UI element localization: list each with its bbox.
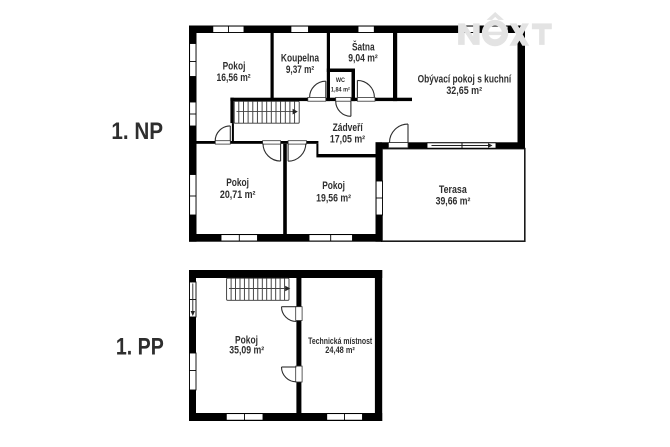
svg-text:Koupelna: Koupelna [281, 52, 319, 64]
svg-text:Pokoj: Pokoj [322, 180, 345, 192]
svg-text:Pokoj: Pokoj [223, 61, 246, 73]
svg-text:16,56 m²: 16,56 m² [217, 72, 251, 84]
svg-text:Šatna: Šatna [352, 40, 375, 53]
svg-text:1. PP: 1. PP [116, 333, 164, 360]
svg-text:1,84 m²: 1,84 m² [331, 87, 351, 94]
svg-text:39,66 m²: 39,66 m² [436, 196, 471, 208]
svg-text:17,05 m²: 17,05 m² [330, 133, 366, 145]
svg-text:WC: WC [336, 77, 346, 84]
svg-text:32,65 m²: 32,65 m² [446, 85, 482, 97]
svg-text:20,71 m²: 20,71 m² [220, 189, 256, 201]
svg-text:Terasa: Terasa [439, 184, 467, 196]
svg-text:9,37 m²: 9,37 m² [286, 64, 315, 76]
svg-text:Pokoj: Pokoj [226, 177, 249, 189]
svg-text:35,09 m²: 35,09 m² [229, 344, 264, 356]
svg-text:1. NP: 1. NP [111, 118, 163, 145]
svg-text:9,04 m²: 9,04 m² [348, 53, 378, 65]
svg-text:24,48 m²: 24,48 m² [325, 345, 355, 355]
svg-text:Obývací pokoj s kuchní: Obývací pokoj s kuchní [418, 73, 512, 85]
svg-text:19,56 m²: 19,56 m² [316, 192, 351, 204]
svg-text:Zádveří: Zádveří [333, 122, 364, 134]
